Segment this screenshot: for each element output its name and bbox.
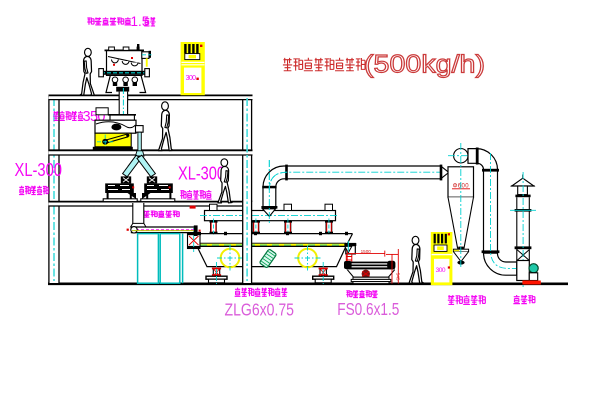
svg-text:1.5: 1.5 [131,14,150,29]
svg-text:1500: 1500 [361,249,372,254]
svg-text:FS0.6x1.5: FS0.6x1.5 [337,299,399,319]
svg-text:545: 545 [396,273,401,281]
svg-text:300: 300 [186,75,196,82]
svg-text:300: 300 [436,267,446,274]
svg-text:XL-300: XL-300 [178,163,225,184]
svg-text:ZLG6x0.75: ZLG6x0.75 [225,300,295,320]
svg-text:(500kg/h): (500kg/h) [364,51,485,79]
svg-text:XL-300: XL-300 [15,159,63,180]
